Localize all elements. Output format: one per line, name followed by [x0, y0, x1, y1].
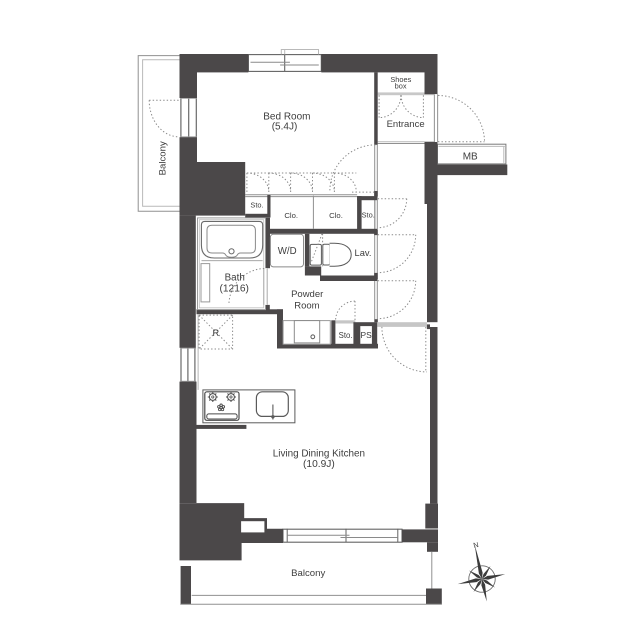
svg-text:Sto.: Sto. — [339, 331, 353, 340]
svg-text:box: box — [395, 82, 407, 91]
svg-text:Clo.: Clo. — [284, 211, 298, 220]
svg-text:(5.4J): (5.4J) — [272, 122, 298, 133]
svg-text:W/D: W/D — [278, 246, 297, 257]
svg-text:Balcony: Balcony — [158, 141, 169, 175]
svg-text:Clo.: Clo. — [329, 211, 343, 220]
svg-text:Sto.: Sto. — [362, 211, 375, 220]
svg-text:MB: MB — [463, 151, 478, 162]
svg-text:Living Dining Kitchen: Living Dining Kitchen — [273, 448, 365, 459]
svg-text:Lav.: Lav. — [355, 248, 372, 258]
svg-text:R: R — [212, 328, 219, 338]
svg-text:Entrance: Entrance — [387, 119, 425, 130]
svg-text:Room: Room — [294, 300, 319, 311]
svg-text:Powder: Powder — [291, 289, 323, 300]
svg-text:Sto.: Sto. — [250, 200, 263, 209]
svg-text:Balcony: Balcony — [291, 568, 325, 579]
svg-text:(1216): (1216) — [219, 283, 248, 294]
svg-text:PS: PS — [361, 330, 373, 340]
svg-text:Bath: Bath — [225, 273, 245, 284]
svg-text:(10.9J): (10.9J) — [303, 459, 335, 470]
